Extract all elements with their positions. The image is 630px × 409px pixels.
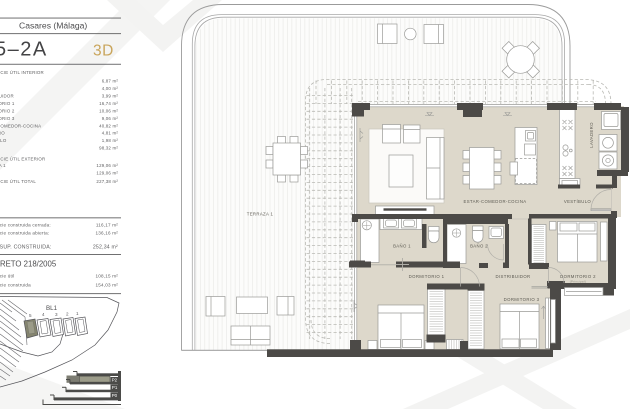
svg-text:Superficie construida cerrada:: Superficie construida cerrada:: [0, 223, 51, 228]
svg-text:SUPERFICIE ÚTIL TOTAL: SUPERFICIE ÚTIL TOTAL: [0, 179, 36, 184]
svg-text:DORMITORIO 1: DORMITORIO 1: [0, 101, 15, 106]
svg-text:LAVADERO: LAVADERO: [589, 122, 594, 148]
svg-text:DORMITORIO 3: DORMITORIO 3: [504, 297, 540, 302]
svg-text:2: 2: [66, 312, 69, 317]
svg-text:(Principal): (Principal): [570, 279, 586, 283]
svg-text:136,16 m²: 136,16 m²: [96, 231, 119, 236]
svg-text:129,06 m²: 129,06 m²: [96, 163, 118, 168]
svg-text:5–2A: 5–2A: [0, 39, 48, 61]
svg-text:P2: P2: [112, 378, 118, 383]
svg-text:SUPERFICIE ÚTIL EXTERIOR: SUPERFICIE ÚTIL EXTERIOR: [0, 156, 45, 161]
svg-text:DISTRIBUIDOR: DISTRIBUIDOR: [0, 93, 14, 98]
svg-text:DORMITORIO 2: DORMITORIO 2: [0, 108, 15, 113]
svg-text:P0: P0: [112, 393, 118, 398]
svg-text:116,17 m²: 116,17 m²: [96, 223, 118, 228]
svg-text:4,00 m²: 4,00 m²: [102, 86, 119, 91]
svg-text:TERRAZA 1: TERRAZA 1: [247, 212, 274, 217]
svg-text:4,81 m²: 4,81 m²: [102, 131, 119, 136]
svg-text:154,03 m²: 154,03 m²: [96, 283, 119, 288]
svg-text:BAÑO 1: BAÑO 1: [393, 243, 411, 248]
svg-text:Superficie útil: Superficie útil: [0, 274, 14, 279]
svg-text:ESTAR-COMEDOR-COCINA: ESTAR-COMEDOR-COCINA: [0, 123, 41, 128]
svg-text:252,34 m²: 252,34 m²: [93, 245, 118, 251]
svg-text:VESTÍBULO: VESTÍBULO: [564, 199, 592, 204]
svg-text:1,98 m²: 1,98 m²: [102, 138, 119, 143]
svg-text:SUPERFICIE ÚTIL INTERIOR: SUPERFICIE ÚTIL INTERIOR: [0, 70, 44, 75]
svg-text:DORMITORIO 2: DORMITORIO 2: [560, 274, 596, 279]
svg-text:40,82 m²: 40,82 m²: [99, 123, 118, 128]
svg-text:6,87 m²: 6,87 m²: [102, 78, 119, 83]
svg-text:16,74 m²: 16,74 m²: [99, 101, 118, 106]
svg-text:BL1: BL1: [46, 305, 58, 312]
svg-text:LAVADERO: LAVADERO: [0, 131, 5, 136]
svg-text:DECRETO 218/2005: DECRETO 218/2005: [0, 260, 57, 269]
svg-text:Superficie construida abierta:: Superficie construida abierta:: [0, 231, 49, 236]
svg-text:DORMITORIO 1: DORMITORIO 1: [409, 274, 445, 279]
svg-text:Superficie construida: Superficie construida: [0, 283, 31, 288]
svg-text:DISTRIBUIDOR: DISTRIBUIDOR: [496, 274, 531, 279]
svg-text:TOTAL SUP. CONSTRUIDA:: TOTAL SUP. CONSTRUIDA:: [0, 245, 52, 251]
svg-text:10,06 m²: 10,06 m²: [99, 108, 118, 113]
svg-text:3D: 3D: [93, 43, 114, 60]
svg-text:DORMITORIO 3: DORMITORIO 3: [0, 116, 15, 121]
svg-text:129,06 m²: 129,06 m²: [96, 170, 118, 175]
svg-text:BAÑO 2: BAÑO 2: [470, 243, 488, 248]
svg-text:ESTAR-COMEDOR-COCINA: ESTAR-COMEDOR-COCINA: [463, 199, 526, 204]
svg-text:9,06 m²: 9,06 m²: [102, 116, 119, 121]
svg-text:3: 3: [55, 312, 58, 317]
svg-text:5: 5: [29, 313, 32, 318]
svg-text:227,38 m²: 227,38 m²: [96, 179, 118, 184]
svg-text:Casares (Málaga): Casares (Málaga): [19, 20, 87, 30]
svg-text:3,99 m²: 3,99 m²: [102, 93, 119, 98]
svg-text:TERRAZA 1: TERRAZA 1: [0, 163, 6, 168]
svg-text:VESTÍBULO: VESTÍBULO: [0, 138, 7, 143]
svg-text:P1: P1: [112, 385, 118, 390]
svg-text:108,15 m²: 108,15 m²: [96, 274, 119, 279]
svg-text:98,32 m²: 98,32 m²: [99, 145, 118, 150]
svg-text:1: 1: [76, 311, 79, 316]
svg-text:4: 4: [42, 312, 45, 317]
